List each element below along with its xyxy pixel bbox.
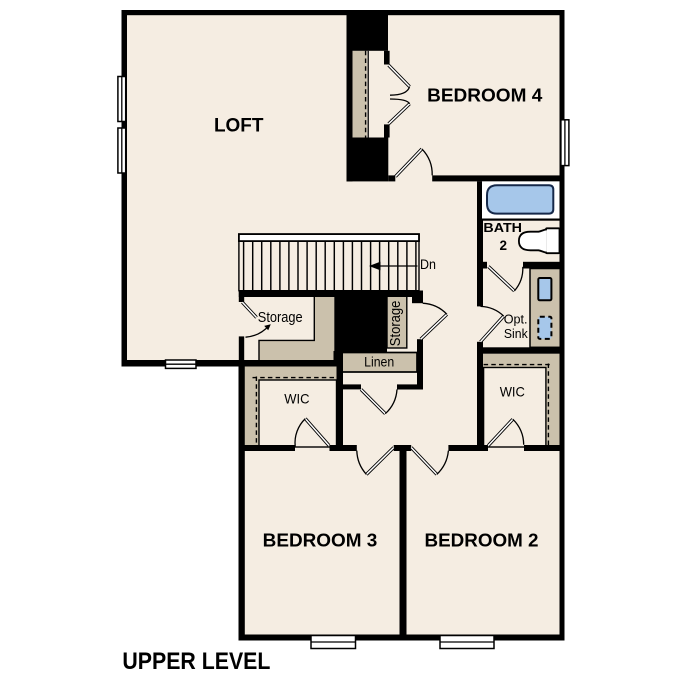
svg-text:BEDROOM 3: BEDROOM 3 bbox=[263, 531, 378, 551]
svg-text:Sink: Sink bbox=[504, 326, 528, 341]
svg-text:LOFT: LOFT bbox=[214, 115, 264, 137]
svg-text:2: 2 bbox=[500, 238, 508, 253]
svg-text:BEDROOM 4: BEDROOM 4 bbox=[427, 85, 542, 105]
svg-text:Opt.: Opt. bbox=[504, 311, 528, 326]
svg-text:Storage: Storage bbox=[258, 310, 303, 326]
svg-text:UPPER LEVEL: UPPER LEVEL bbox=[122, 648, 270, 675]
svg-text:BATH: BATH bbox=[483, 220, 522, 235]
svg-text:BEDROOM 2: BEDROOM 2 bbox=[425, 531, 539, 551]
svg-text:Dn: Dn bbox=[420, 257, 436, 272]
svg-text:WIC: WIC bbox=[284, 392, 309, 407]
svg-text:Storage: Storage bbox=[388, 301, 404, 347]
svg-text:WIC: WIC bbox=[500, 384, 525, 399]
svg-text:Linen: Linen bbox=[364, 354, 394, 369]
